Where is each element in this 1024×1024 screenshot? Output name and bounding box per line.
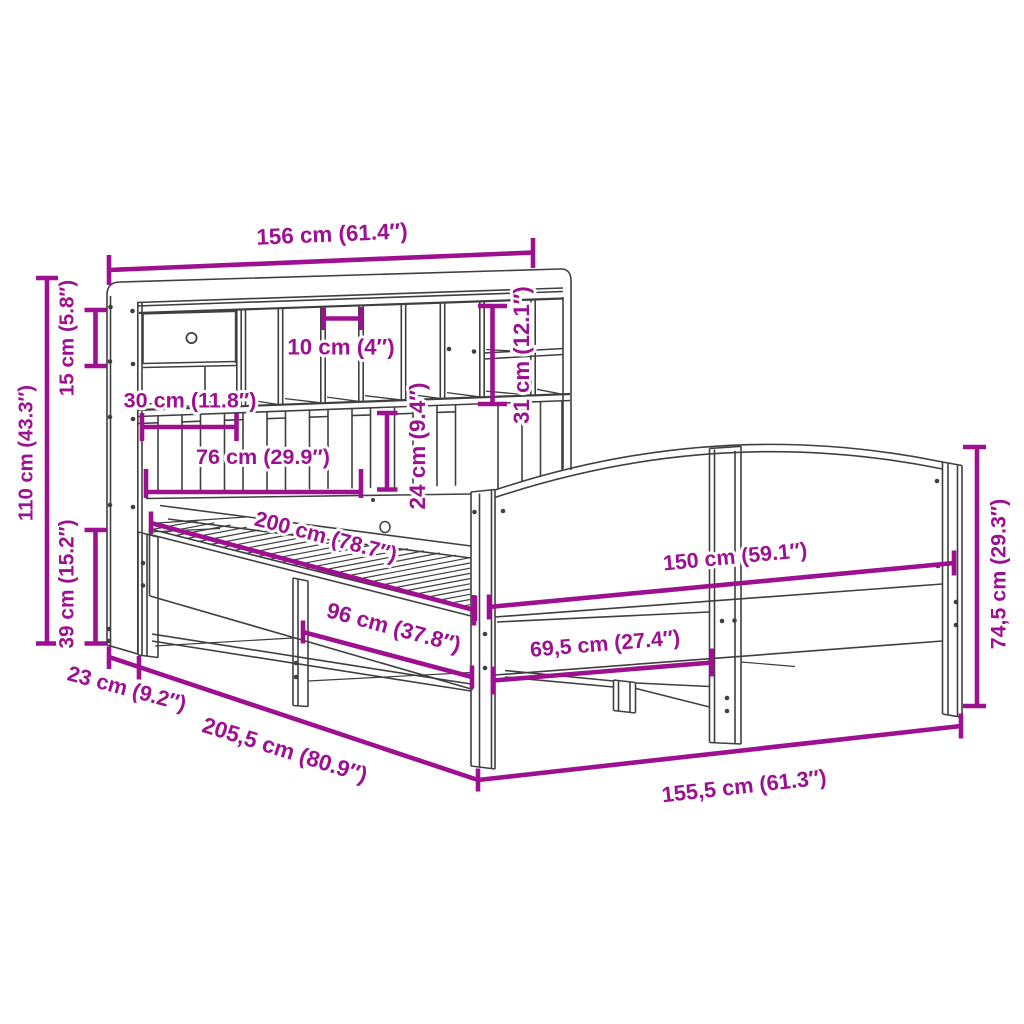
svg-text:15 cm (5.8″): 15 cm (5.8″) [55,280,78,396]
svg-text:24 cm (9.4″): 24 cm (9.4″) [405,382,430,509]
svg-text:31 cm (12.1″): 31 cm (12.1″) [509,286,534,424]
svg-text:10 cm (4″): 10 cm (4″) [287,335,394,360]
svg-text:74,5 cm (29.3″): 74,5 cm (29.3″) [987,499,1011,650]
svg-text:110 cm (43.3″): 110 cm (43.3″) [15,385,37,521]
svg-text:76 cm (29.9″): 76 cm (29.9″) [196,444,330,469]
svg-text:39 cm (15.2″): 39 cm (15.2″) [55,519,78,648]
svg-text:30 cm (11.8″): 30 cm (11.8″) [124,387,257,412]
